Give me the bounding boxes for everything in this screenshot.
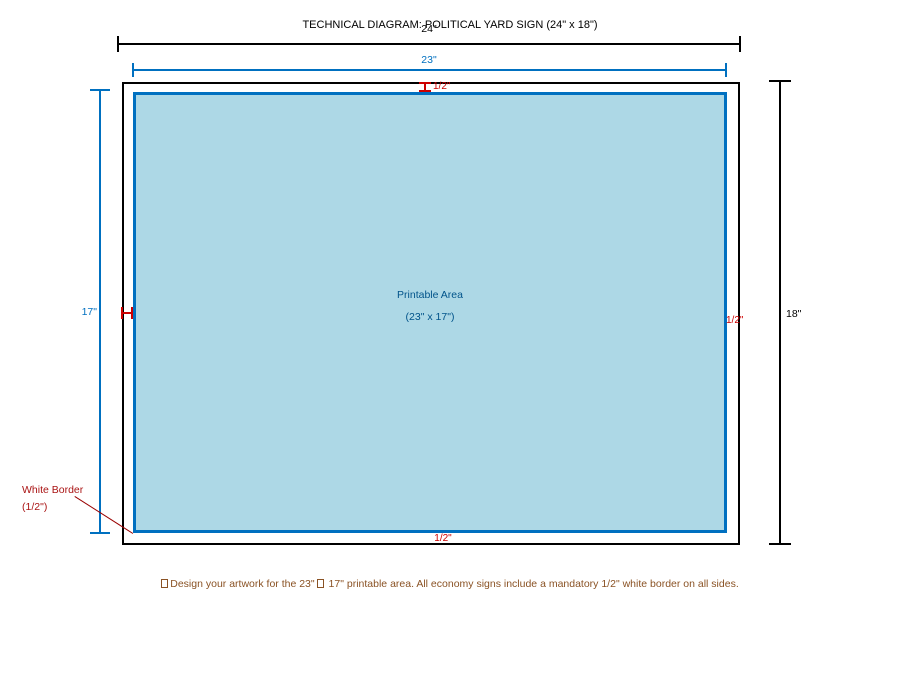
outer-width-tick-left bbox=[117, 36, 119, 52]
outer-height-cap-top bbox=[769, 80, 791, 82]
design-note: Design your artwork for the 23" 17" prin… bbox=[0, 578, 900, 590]
printable-height-cap-top bbox=[90, 89, 110, 91]
white-border-callout-size: (1/2") bbox=[22, 501, 47, 513]
half-inch-right-label: 1/2" bbox=[726, 315, 743, 326]
half-inch-left-marker-cap bbox=[131, 307, 133, 319]
outer-height-dimension-line bbox=[779, 81, 781, 545]
printable-height-cap-bottom bbox=[90, 532, 110, 534]
half-inch-top-marker-cap bbox=[419, 82, 431, 84]
printable-area-title: Printable Area bbox=[133, 289, 727, 301]
note-text-1: Design your artwork for the 23" bbox=[170, 578, 314, 590]
outer-width-label: 24" bbox=[421, 23, 436, 35]
half-inch-left-marker-cap bbox=[121, 307, 123, 319]
printable-width-label: 23" bbox=[421, 54, 436, 66]
printable-height-dimension-line bbox=[99, 90, 101, 533]
printable-height-label: 17" bbox=[70, 306, 97, 318]
half-inch-top-label: 1/2" bbox=[433, 81, 450, 92]
printable-width-tick-left bbox=[132, 63, 134, 77]
printable-width-tick-right bbox=[725, 63, 727, 77]
outer-height-label: 18" bbox=[786, 308, 801, 320]
note-text-2: 17" printable area. All economy signs in… bbox=[329, 578, 739, 590]
missing-glyph-icon bbox=[161, 579, 168, 588]
diagram-title: TECHNICAL DIAGRAM: POLITICAL YARD SIGN (… bbox=[0, 19, 900, 31]
outer-width-tick-right bbox=[739, 36, 741, 52]
half-inch-bottom-label: 1/2" bbox=[434, 533, 451, 544]
half-inch-top-marker-cap bbox=[419, 90, 431, 92]
printable-width-dimension-line bbox=[133, 69, 727, 71]
printable-area-size: (23" x 17") bbox=[133, 311, 727, 323]
missing-glyph-icon bbox=[317, 579, 324, 588]
outer-width-dimension-line bbox=[118, 43, 740, 45]
technical-diagram-canvas: TECHNICAL DIAGRAM: POLITICAL YARD SIGN (… bbox=[0, 0, 900, 700]
white-border-callout-title: White Border bbox=[22, 484, 83, 496]
outer-height-cap-bottom bbox=[769, 543, 791, 545]
